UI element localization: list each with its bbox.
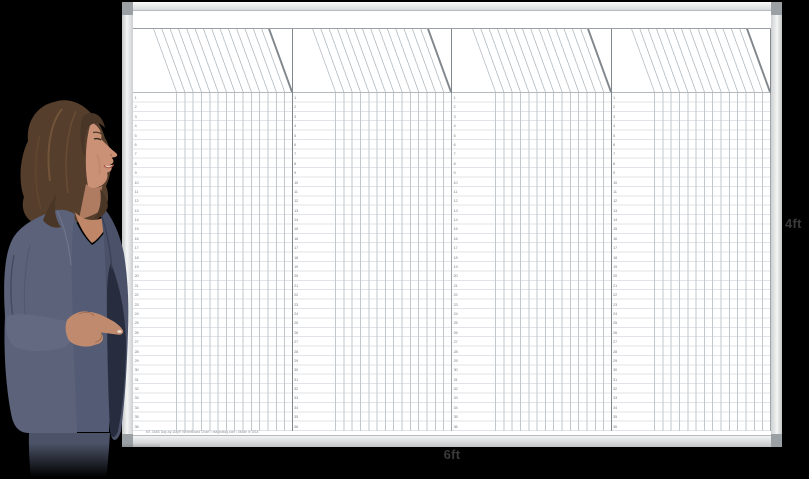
row-number: 35 — [294, 412, 298, 421]
board-panel-3: 1234567891011121314151617181920212223242… — [452, 29, 612, 431]
row-number: 33 — [613, 393, 617, 402]
row-number: 35 — [454, 412, 458, 421]
row-number: 20 — [454, 271, 458, 280]
row-number: 25 — [294, 318, 298, 327]
row-number: 14 — [613, 215, 617, 224]
panel-grid: 1234567891011121314151617181920212223242… — [452, 92, 611, 431]
row-number: 10 — [613, 178, 617, 187]
panel-header — [452, 29, 611, 92]
row-number: 16 — [613, 234, 617, 243]
row-number: 31 — [613, 375, 617, 384]
row-number: 2 — [294, 102, 296, 111]
row-number: 11 — [454, 187, 458, 196]
fine-print: MT-344B Day-by-Day® WhiteBoard Chart • m… — [146, 430, 259, 434]
row-number: 24 — [613, 309, 617, 318]
row-number: 23 — [294, 300, 298, 309]
column-lines — [654, 93, 771, 431]
row-number: 24 — [454, 309, 458, 318]
row-number: 5 — [613, 131, 615, 140]
row-number: 4 — [454, 121, 456, 130]
row-number: 18 — [454, 253, 458, 262]
row-number: 5 — [454, 131, 456, 140]
row-number: 30 — [454, 365, 458, 374]
row-number: 35 — [613, 412, 617, 421]
row-number: 15 — [294, 224, 298, 233]
row-number: 9 — [294, 168, 296, 177]
row-number: 27 — [613, 337, 617, 346]
board-panel-4: 1234567891011121314151617181920212223242… — [612, 29, 772, 431]
row-number: 7 — [613, 149, 615, 158]
row-number: 32 — [613, 384, 617, 393]
row-number: 1 — [613, 93, 615, 102]
frame-corner-cap — [771, 2, 782, 15]
row-number: 25 — [613, 318, 617, 327]
panel-header — [612, 29, 771, 92]
column-lines — [495, 93, 612, 431]
row-number: 21 — [454, 281, 458, 290]
row-number: 15 — [454, 224, 458, 233]
frame-rail-bottom — [122, 435, 782, 447]
row-number: 24 — [294, 309, 298, 318]
row-number: 14 — [294, 215, 298, 224]
row-number: 11 — [294, 187, 298, 196]
row-number: 13 — [613, 206, 617, 215]
row-number: 20 — [294, 271, 298, 280]
row-number: 27 — [294, 337, 298, 346]
row-number: 28 — [454, 347, 458, 356]
row-number: 23 — [613, 300, 617, 309]
board-panel-2: 1234567891011121314151617181920212223242… — [293, 29, 453, 431]
row-number: 34 — [454, 403, 458, 412]
row-number: 1 — [454, 93, 456, 102]
woman-nostril — [110, 154, 112, 156]
row-number: 28 — [613, 347, 617, 356]
presenter-woman — [0, 95, 160, 479]
row-number: 9 — [613, 168, 615, 177]
row-number: 2 — [454, 102, 456, 111]
whiteboard: 1234567891011121314151617181920212223242… — [122, 2, 782, 447]
row-number: 21 — [294, 281, 298, 290]
column-lines — [335, 93, 452, 431]
product-photo-scene: 1234567891011121314151617181920212223242… — [0, 0, 809, 479]
row-number: 31 — [294, 375, 298, 384]
row-number: 19 — [294, 262, 298, 271]
fingernail — [117, 330, 121, 333]
row-number: 26 — [613, 328, 617, 337]
row-number: 34 — [294, 403, 298, 412]
row-number: 26 — [294, 328, 298, 337]
row-number: 19 — [454, 262, 458, 271]
frame-rail-top — [122, 2, 782, 11]
row-number: 30 — [294, 365, 298, 374]
panel-grid: 1234567891011121314151617181920212223242… — [293, 92, 452, 431]
row-number: 12 — [454, 196, 458, 205]
row-number: 4 — [294, 121, 296, 130]
row-number: 20 — [613, 271, 617, 280]
board-width-label: 6ft — [122, 447, 782, 462]
row-number: 22 — [294, 290, 298, 299]
row-number: 21 — [613, 281, 617, 290]
row-number: 31 — [454, 375, 458, 384]
row-number: 34 — [613, 403, 617, 412]
row-number: 8 — [454, 159, 456, 168]
row-number: 11 — [613, 187, 617, 196]
row-number: 8 — [613, 159, 615, 168]
row-number: 7 — [454, 149, 456, 158]
row-number: 6 — [454, 140, 456, 149]
row-number: 3 — [613, 112, 615, 121]
row-number: 18 — [294, 253, 298, 262]
row-number: 16 — [294, 234, 298, 243]
row-number: 6 — [613, 140, 615, 149]
row-number: 29 — [613, 356, 617, 365]
board-surface: 1234567891011121314151617181920212223242… — [133, 11, 771, 435]
row-number: 3 — [294, 112, 296, 121]
row-number: 17 — [613, 243, 617, 252]
frame-corner-cap — [122, 2, 133, 15]
row-number: 17 — [294, 243, 298, 252]
row-number: 29 — [454, 356, 458, 365]
row-number: 12 — [294, 196, 298, 205]
bottom-fade — [0, 443, 160, 479]
panel-grid: 1234567891011121314151617181920212223242… — [612, 92, 771, 431]
row-number: 14 — [454, 215, 458, 224]
row-number: 36 — [454, 422, 458, 431]
panel-header — [293, 29, 452, 92]
row-number: 10 — [454, 178, 458, 187]
row-number: 19 — [613, 262, 617, 271]
row-number: 22 — [454, 290, 458, 299]
row-number: 15 — [613, 224, 617, 233]
row-number: 16 — [454, 234, 458, 243]
frame-rail-right — [771, 2, 782, 447]
row-number: 26 — [454, 328, 458, 337]
row-number: 12 — [613, 196, 617, 205]
panel-header — [133, 29, 292, 92]
row-number: 9 — [454, 168, 456, 177]
board-height-label: 4ft — [785, 216, 802, 231]
row-number: 4 — [613, 121, 615, 130]
row-number: 7 — [294, 149, 296, 158]
row-number: 13 — [294, 206, 298, 215]
row-number: 1 — [294, 93, 296, 102]
row-number: 27 — [454, 337, 458, 346]
row-number: 8 — [294, 159, 296, 168]
row-number: 30 — [613, 365, 617, 374]
row-number: 3 — [454, 112, 456, 121]
row-number: 25 — [454, 318, 458, 327]
row-number: 5 — [294, 131, 296, 140]
row-number: 6 — [294, 140, 296, 149]
row-number: 13 — [454, 206, 458, 215]
row-number: 32 — [454, 384, 458, 393]
row-number: 22 — [613, 290, 617, 299]
row-number: 33 — [454, 393, 458, 402]
column-lines — [176, 93, 293, 431]
frame-corner-cap — [771, 434, 782, 447]
row-number: 10 — [294, 178, 298, 187]
row-number: 23 — [454, 300, 458, 309]
row-number: 36 — [294, 422, 298, 431]
row-number: 2 — [613, 102, 615, 111]
row-number: 36 — [613, 422, 617, 431]
row-number: 18 — [613, 253, 617, 262]
row-number: 33 — [294, 393, 298, 402]
row-number: 32 — [294, 384, 298, 393]
row-number: 29 — [294, 356, 298, 365]
row-number: 17 — [454, 243, 458, 252]
row-number: 28 — [294, 347, 298, 356]
